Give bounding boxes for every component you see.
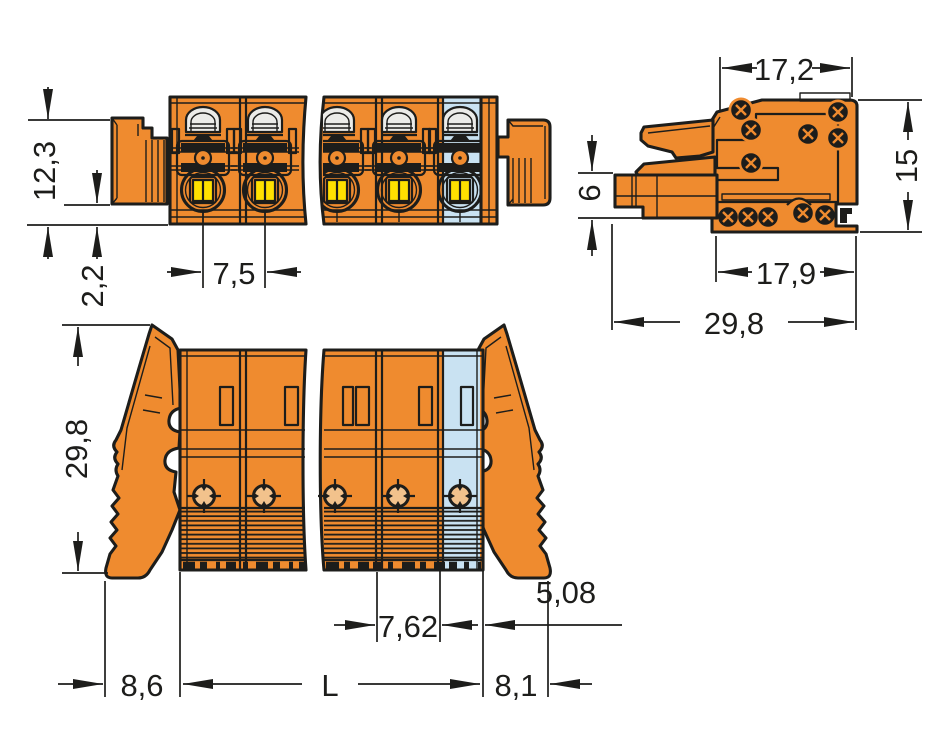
dim-label-end-pole-pitch: 7,62 [378, 609, 438, 644]
dimension-housing-height: 15 [858, 100, 924, 232]
locking-lever-top [498, 120, 550, 205]
connector-body-top-left [169, 97, 306, 224]
dimension-lever-left: 8,6 [58, 668, 164, 703]
dim-label-lever-left: 8,6 [120, 668, 163, 703]
dimension-end-offset: 5,08 [485, 575, 622, 625]
screw-icon [732, 101, 750, 119]
dim-label-total-height: 29,8 [59, 419, 94, 479]
release-lever-left [106, 325, 181, 578]
release-lever-right [475, 325, 550, 578]
connector-dimension-drawing: 12,3 2,2 7,5 [0, 0, 940, 733]
dim-label-housing-width: 17,2 [754, 52, 814, 87]
screw-icon [742, 121, 760, 139]
screw-icon [829, 129, 847, 147]
conductor-entry [615, 175, 717, 218]
screw-icon [739, 208, 757, 226]
front-view: 29,8 7,62 5,08 8,6 L 8,1 [58, 325, 622, 703]
screw-icon [742, 154, 760, 172]
screw-icon [794, 204, 812, 222]
panel-hook [840, 208, 852, 223]
dim-label-housing-height: 15 [889, 149, 924, 183]
screw-icon [759, 208, 777, 226]
screw-icon [799, 125, 817, 143]
screw-icon [816, 206, 834, 224]
dim-label-total-depth: 29,8 [704, 306, 764, 341]
dim-label-conductor-entry: 6 [572, 184, 607, 201]
dim-label-plate-overhang: 2,2 [75, 264, 110, 307]
connector-body-top-right [303, 97, 497, 224]
dimension-plate-overhang: 2,2 [64, 170, 110, 308]
dimension-total-length: L [183, 668, 480, 703]
technical-drawing-page: 12,3 2,2 7,5 [0, 0, 940, 733]
release-lever-side [636, 120, 715, 180]
connector-body-front-right [318, 350, 483, 570]
dimension-end-pole-pitch: 7,62 [334, 609, 478, 644]
dimension-total-depth: 29,8 [612, 224, 854, 341]
dim-label-total-length: L [321, 668, 338, 703]
strain-relief-plate [112, 118, 167, 204]
dim-label-pole-pitch: 7,5 [212, 256, 255, 291]
dimension-lever-right: 8,1 [494, 668, 592, 703]
dim-label-plate-height: 12,3 [27, 141, 62, 201]
top-view: 12,3 2,2 7,5 [27, 87, 550, 308]
screw-icon [829, 103, 847, 121]
dim-label-end-offset: 5,08 [536, 575, 596, 610]
screw-icon [719, 208, 737, 226]
dim-label-lower-width: 17,9 [756, 256, 816, 291]
dim-label-lever-right: 8,1 [494, 668, 537, 703]
side-view: 17,2 15 6 17,9 29,8 [572, 52, 924, 341]
connector-body-front-left [180, 350, 306, 570]
